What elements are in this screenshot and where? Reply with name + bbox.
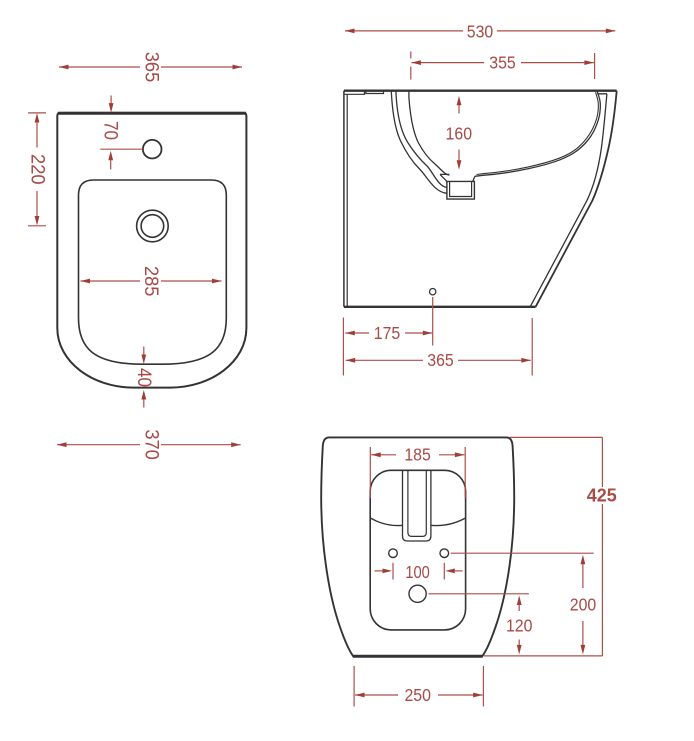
- svg-text:70: 70: [100, 121, 121, 140]
- svg-text:200: 200: [570, 595, 597, 615]
- svg-text:365: 365: [427, 350, 454, 370]
- svg-text:120: 120: [506, 616, 533, 636]
- svg-text:40: 40: [133, 368, 154, 387]
- svg-text:285: 285: [140, 266, 161, 297]
- svg-text:355: 355: [489, 53, 516, 73]
- svg-text:100: 100: [405, 562, 430, 582]
- svg-text:370: 370: [141, 429, 162, 460]
- svg-text:220: 220: [26, 154, 47, 185]
- svg-text:425: 425: [587, 486, 617, 506]
- svg-text:250: 250: [404, 685, 431, 705]
- svg-text:530: 530: [467, 22, 494, 42]
- svg-text:175: 175: [374, 323, 401, 343]
- svg-text:160: 160: [446, 124, 473, 144]
- svg-text:185: 185: [404, 445, 431, 465]
- svg-text:365: 365: [141, 52, 162, 83]
